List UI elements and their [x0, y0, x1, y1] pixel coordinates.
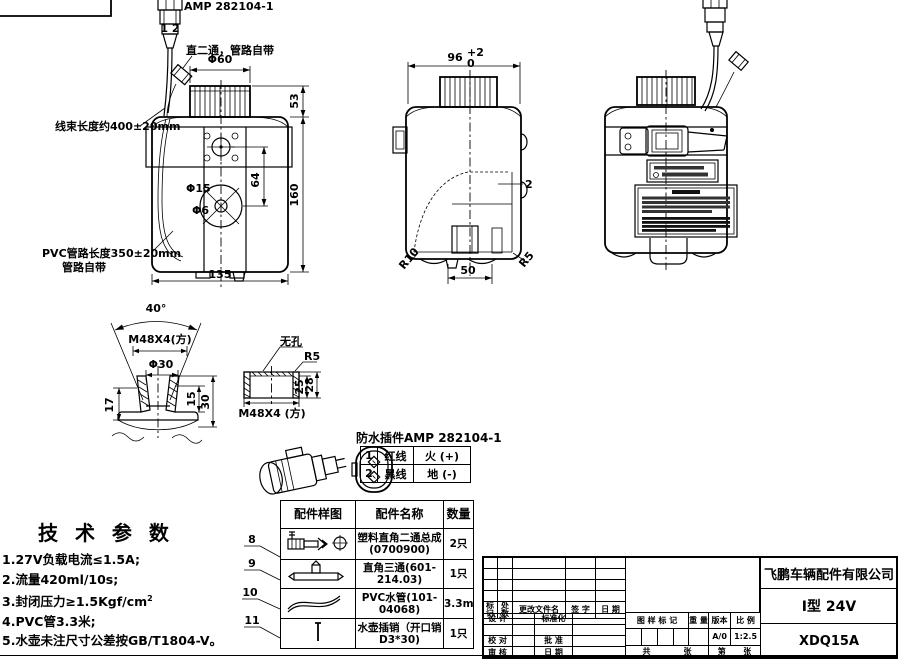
side-view: 96 +2 0 2 50 R: [393, 46, 537, 284]
front-connector-pin-labels: 1 2: [160, 22, 179, 35]
date-label: 日 期: [535, 647, 573, 659]
front-connector-label: AMP 282104-1: [184, 0, 274, 13]
svg-text:50: 50: [460, 264, 476, 277]
tech-param-item: 2.流量420ml/10s;: [2, 570, 258, 590]
sample-elbow-fitting-icon: [281, 529, 356, 560]
svg-text:17: 17: [103, 397, 116, 412]
rear-view: [605, 0, 748, 270]
cap-r5: R5: [304, 350, 320, 363]
connector-pinout-table: 1 红线 火 (+) 2 黑线 地 (-): [360, 446, 471, 483]
svg-text:64: 64: [249, 172, 262, 188]
rear-tube-fitting: [729, 52, 748, 71]
dim-shaft-dia: Φ6: [192, 204, 209, 217]
model-name: I型 24V: [761, 589, 898, 624]
connector-table-title: 防水插件AMP 282104-1: [356, 429, 480, 446]
flange-dims: 17 15 30: [103, 376, 217, 427]
dim-foot-span: 50: [448, 264, 492, 284]
svg-text:96: 96: [447, 51, 463, 64]
part-name: 塑料直角二通总成(0700900): [356, 529, 444, 560]
dim-cap-dia: Φ60: [190, 53, 250, 83]
svg-text:2: 2: [525, 178, 533, 191]
front-view: 1 2 AMP 282104-1 直二通，管路自带 Φ60: [42, 0, 309, 287]
parts-table: 配件样图 配件名称 数量 塑料直角二通总成(0700900) 2只 直角三通(6…: [280, 500, 474, 649]
part-qty: 1只: [444, 619, 474, 649]
cap-dims: 25 28: [293, 372, 321, 398]
approve-label: 批 准: [535, 636, 573, 647]
connector-side-drawing: [255, 439, 348, 496]
dim-pump-dia: Φ15: [186, 182, 211, 195]
dim-height: 160: [288, 117, 309, 272]
version-value: A/0: [709, 629, 731, 646]
revision-table: 标记 处数 更改文件名 签 字 日 期: [482, 557, 626, 619]
sample-pin-icon: [281, 619, 356, 649]
signature-table: 设 计 标准化 校 对 批 准 审 核 日 期: [482, 613, 626, 659]
dim-wall: 2: [498, 178, 533, 191]
svg-text:0: 0: [467, 57, 475, 70]
sample-pvc-tube-icon: [281, 589, 356, 619]
sheet-bottom-border: [0, 655, 898, 656]
part-name: PVC水管(101-04068): [356, 589, 444, 619]
pin-wire: 黑线: [378, 465, 414, 483]
flange-section: 40° M48X4(方) Φ30 17 15: [103, 302, 217, 443]
part-name: 直角三通(601-214.03): [356, 560, 444, 589]
flange-thread: M48X4(方): [128, 332, 191, 346]
sample-tee-fitting-icon: [281, 560, 356, 589]
pinout-row: 1 红线 火 (+): [361, 447, 471, 465]
part-name: 水壶插销（开口销D3*30): [356, 619, 444, 649]
tech-params: 技 术 参 数 1.27V负载电流≤1.5A; 2.流量420ml/10s; 3…: [2, 517, 258, 651]
front-cap: [190, 86, 250, 117]
design-label: 设 计: [483, 614, 513, 625]
tube-fitting: [171, 65, 192, 85]
pin-signal: 火 (+): [414, 447, 471, 465]
company-name: 飞鹏车辆配件有限公司: [761, 558, 898, 589]
svg-text:Φ60: Φ60: [208, 53, 233, 66]
tech-param-item: 1.27V负载电流≤1.5A;: [2, 550, 258, 570]
tech-param-item: 5.水壶未注尺寸公差按GB/T1804-V。: [2, 631, 258, 651]
product-label-small: [647, 160, 718, 182]
svg-text:28: 28: [303, 377, 316, 392]
parts-row: 水壶插销（开口销D3*30) 1只: [281, 619, 474, 649]
parts-header-row: 配件样图 配件名称 数量: [281, 501, 474, 529]
scale-value: 1:2.5: [731, 629, 761, 646]
svg-text:53: 53: [288, 93, 301, 108]
svg-text:135: 135: [209, 268, 232, 281]
side-internal: [414, 172, 512, 253]
parts-row: PVC水管(101-04068) 3.3m: [281, 589, 474, 619]
dim-width: 135: [152, 268, 288, 285]
pvc-note-line2: 管路自带: [62, 260, 106, 274]
svg-text:30: 30: [199, 394, 212, 410]
company-block: 飞鹏车辆配件有限公司 I型 24V XDQ15A: [760, 557, 898, 659]
svg-text:160: 160: [288, 183, 301, 206]
dim-side-width: 96 +2 0: [408, 46, 520, 104]
pin-signal: 地 (-): [414, 465, 471, 483]
no-hole-note: 无孔: [279, 335, 302, 348]
rear-bottom-tab: [650, 238, 687, 264]
sheet-total-cell: 共张: [626, 646, 709, 659]
sheet-page-cell: 第张: [709, 646, 761, 659]
parts-row: 直角三通(601-214.03) 1只: [281, 560, 474, 589]
pin-wire: 红线: [378, 447, 414, 465]
inner-tube: [158, 119, 181, 261]
cap-section: 无孔 R5 25 28 M48X4 (方): [238, 335, 321, 420]
col-name: 配件名称: [356, 501, 444, 529]
col-sample: 配件样图: [281, 501, 356, 529]
tech-param-item: 3.封闭压力≥1.5Kgf/cm2: [2, 589, 258, 612]
weight-label: 重 量: [689, 613, 709, 629]
dim-cap-h: 53: [252, 86, 309, 117]
pvc-note-line1: PVC管路长度350±20mm: [42, 246, 181, 260]
parts-row: 塑料直角二通总成(0700900) 2只: [281, 529, 474, 560]
title-block-empty-box: [625, 557, 760, 613]
part-number: XDQ15A: [761, 624, 898, 659]
mark-scale-table: 图 样 标 记 重 量 版本 比 例 A/0 1:2.5 共张 第张: [625, 612, 761, 659]
pin-no: 1: [361, 447, 378, 465]
part-qty: 3.3m: [444, 589, 474, 619]
pin-no: 2: [361, 465, 378, 483]
fitting-note-leader: [183, 56, 192, 68]
part-qty: 2只: [444, 529, 474, 560]
pinout-row: 2 黑线 地 (-): [361, 465, 471, 483]
part-qty: 1只: [444, 560, 474, 589]
svg-text:15: 15: [185, 391, 198, 406]
drawing-mark-label: 图 样 标 记: [626, 613, 689, 629]
standardize-label: 标准化: [535, 614, 573, 625]
dim-r-right: R5: [516, 249, 536, 270]
side-cap: [440, 77, 497, 107]
harness-note: 线束长度约400±20mm: [55, 119, 180, 133]
dim-dia30: Φ30: [149, 358, 174, 371]
tech-params-title: 技 术 参 数: [38, 517, 258, 546]
version-label: 版本: [709, 613, 731, 629]
col-qty: 数量: [444, 501, 474, 529]
tech-param-item: 4.PVC管3.3米;: [2, 612, 258, 632]
cutoff-box: [0, 0, 111, 16]
scale-label: 比 例: [731, 613, 761, 629]
warning-label: [635, 185, 737, 237]
review-label: 审 核: [483, 647, 513, 659]
dim-angle: 40°: [146, 302, 167, 315]
drawing-sheet: 1 2 AMP 282104-1 直二通，管路自带 Φ60: [0, 0, 900, 660]
proofread-label: 校 对: [483, 636, 513, 647]
side-body: [406, 107, 521, 259]
cap-thread: M48X4 (方): [238, 406, 305, 420]
